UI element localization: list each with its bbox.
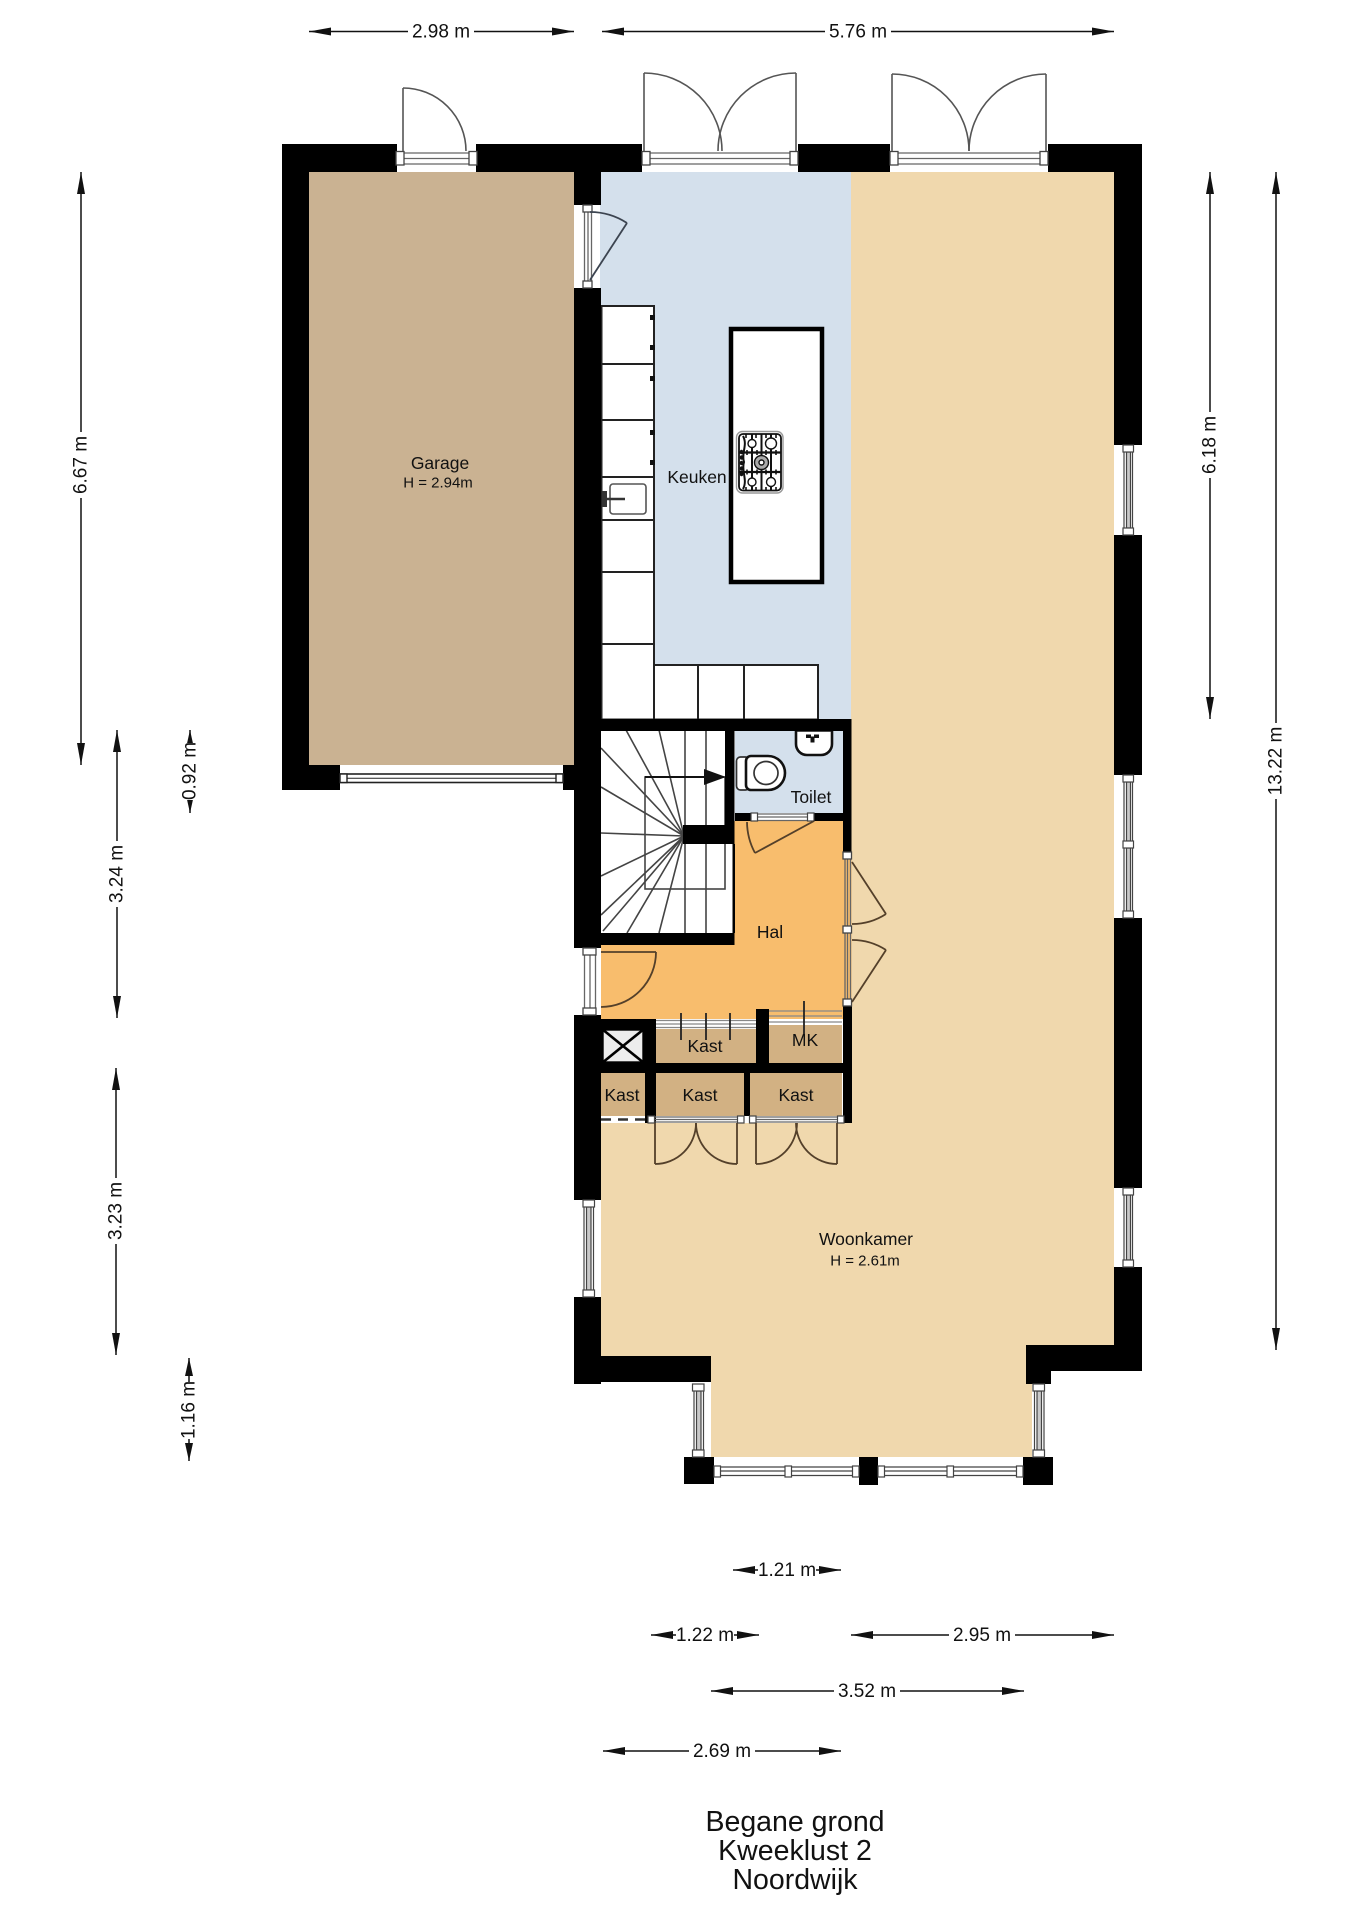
svg-text:MK: MK [792,1030,819,1050]
svg-text:3.24 m: 3.24 m [107,845,128,903]
svg-text:2.95 m: 2.95 m [953,1625,1011,1646]
svg-text:2.69 m: 2.69 m [693,1741,751,1762]
svg-text:0.92 m: 0.92 m [180,742,201,800]
svg-text:1.16 m: 1.16 m [179,1381,200,1439]
svg-text:1.21 m: 1.21 m [758,1560,816,1581]
svg-text:Garage: Garage [411,453,469,473]
svg-text:Woonkamer: Woonkamer [819,1229,913,1249]
svg-text:13.22 m: 13.22 m [1266,727,1287,796]
svg-text:Keuken: Keuken [667,467,726,487]
svg-text:6.18 m: 6.18 m [1200,416,1221,474]
svg-text:3.52 m: 3.52 m [838,1681,896,1702]
svg-text:Begane grond: Begane grond [705,1806,884,1838]
svg-text:3.23 m: 3.23 m [106,1182,127,1240]
svg-text:Toilet: Toilet [791,787,832,807]
svg-text:Kweeklust 2: Kweeklust 2 [718,1835,872,1867]
svg-text:Hal: Hal [757,922,783,942]
svg-text:Kast: Kast [687,1036,722,1056]
svg-text:H = 2.61m: H = 2.61m [830,1253,900,1270]
svg-text:6.67 m: 6.67 m [71,436,92,494]
svg-text:2.98 m: 2.98 m [412,22,470,43]
svg-text:5.76 m: 5.76 m [829,22,887,43]
svg-text:Kast: Kast [604,1085,639,1105]
svg-text:1.22 m: 1.22 m [676,1625,734,1646]
svg-text:H = 2.94m: H = 2.94m [403,475,473,492]
svg-text:Noordwijk: Noordwijk [732,1864,858,1896]
svg-text:Kast: Kast [682,1085,717,1105]
svg-text:Kast: Kast [778,1085,813,1105]
